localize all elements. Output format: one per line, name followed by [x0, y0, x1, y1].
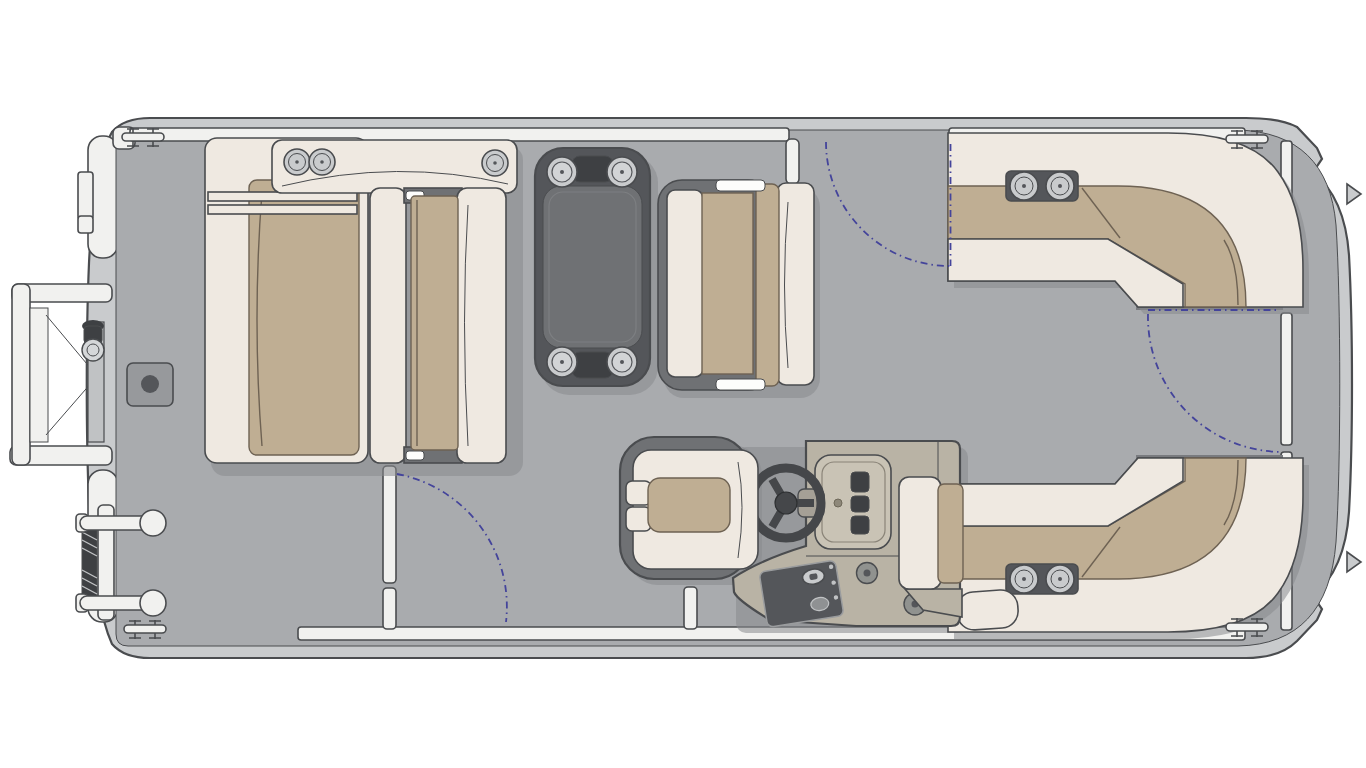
fin — [1347, 184, 1361, 204]
dinette-table: Table with four cup holders — [535, 148, 650, 386]
cup-holder — [607, 157, 637, 187]
switch-panel: Ignition / switch panel — [759, 560, 844, 627]
cup-holder — [284, 149, 310, 175]
top-gate-post — [786, 139, 799, 184]
cup-holder — [482, 150, 508, 176]
cup-holder — [607, 347, 637, 377]
fin — [1347, 552, 1361, 572]
bow-facing-bench: Facing bench seat — [370, 188, 506, 463]
stern-pod: Corner step pod — [956, 589, 1020, 631]
cup-holder — [547, 347, 577, 377]
stern-gate — [1281, 313, 1292, 445]
bow-light: Bow navigation light — [78, 172, 93, 233]
helm-dash: Instrument panel — [815, 455, 891, 549]
captains-chair: Captain's chair — [620, 437, 758, 579]
dinette-bench: Dinette bench seat — [658, 180, 814, 390]
cup-holder — [547, 157, 577, 187]
stern-lounge-starboard: Starboard stern wraparound lounge — [948, 133, 1309, 314]
cup-holder — [309, 149, 335, 175]
port-gate-post — [684, 587, 697, 629]
bow-armrest-console — [272, 140, 517, 193]
table-base-mount: Table base deck mount — [127, 363, 173, 406]
speaker: Speaker — [857, 563, 878, 584]
port-side-gate: Port side gate shown open — [383, 466, 396, 629]
pontoon-floorplan-diagram: Pontoon boat floor plan — overhead view … — [0, 0, 1366, 768]
